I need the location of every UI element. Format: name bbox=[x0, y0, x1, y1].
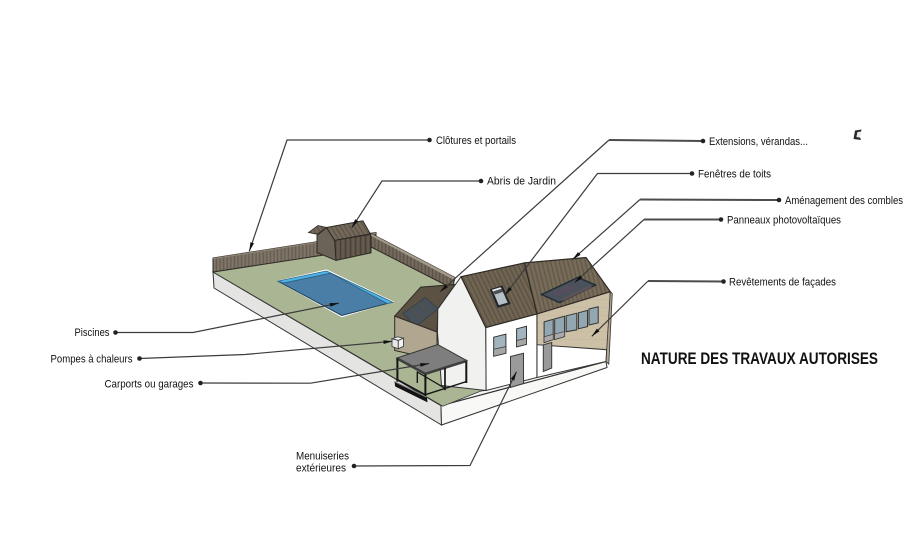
svg-text:Menuiseries: Menuiseries bbox=[296, 451, 349, 463]
svg-text:Pompes à chaleurs: Pompes à chaleurs bbox=[51, 354, 133, 366]
svg-text:Clôtures et portails: Clôtures et portails bbox=[436, 135, 516, 147]
svg-text:Revêtements de façades: Revêtements de façades bbox=[729, 277, 836, 289]
svg-text:Extensions, vérandas...: Extensions, vérandas... bbox=[709, 136, 808, 148]
svg-text:NATURE DES TRAVAUX AUTORISES: NATURE DES TRAVAUX AUTORISES bbox=[641, 350, 878, 368]
svg-text:extérieures: extérieures bbox=[296, 463, 346, 475]
svg-text:Aménagement des combles: Aménagement des combles bbox=[785, 195, 903, 207]
svg-text:Fenêtres de toits: Fenêtres de toits bbox=[698, 169, 771, 181]
svg-text:Carports ou garages: Carports ou garages bbox=[105, 379, 194, 391]
svg-text:Panneaux photovoltaïques: Panneaux photovoltaïques bbox=[727, 215, 841, 227]
svg-text:Abris de Jardin: Abris de Jardin bbox=[487, 176, 556, 188]
svg-text:Piscines: Piscines bbox=[75, 327, 110, 339]
